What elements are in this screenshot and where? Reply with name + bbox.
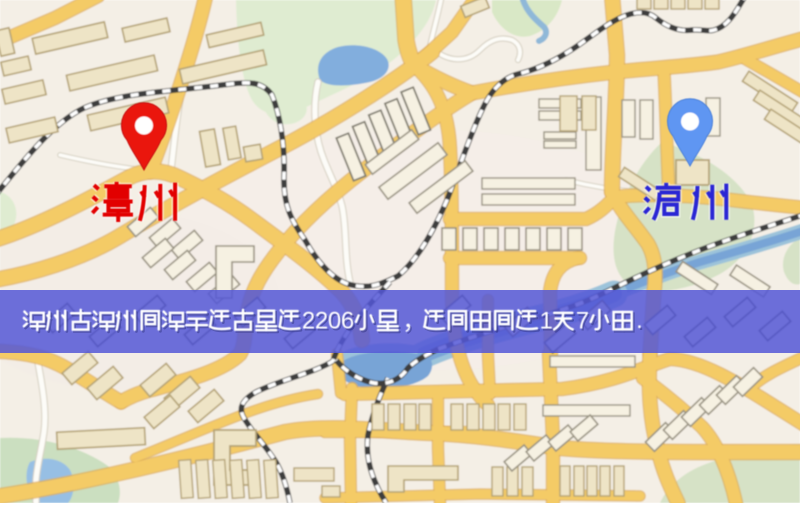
svg-text:6: 6 xyxy=(341,308,354,335)
svg-text:7: 7 xyxy=(576,308,589,335)
svg-text:1: 1 xyxy=(540,308,553,335)
svg-text:2: 2 xyxy=(315,308,328,335)
svg-text:2: 2 xyxy=(302,308,315,335)
svg-text:.: . xyxy=(636,307,643,334)
svg-text:，: ， xyxy=(402,308,426,335)
svg-text:0: 0 xyxy=(328,308,341,335)
